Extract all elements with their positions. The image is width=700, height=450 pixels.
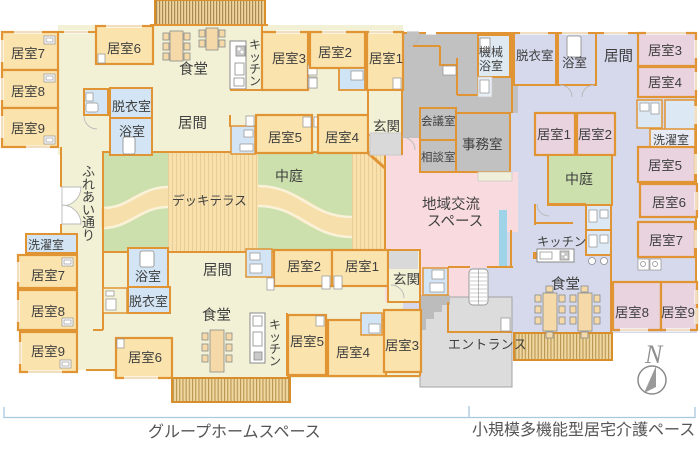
svg-text:地域交流: 地域交流 xyxy=(422,195,480,213)
svg-text:居室6: 居室6 xyxy=(128,349,162,365)
svg-text:小規模多機能型居宅介護ペース: 小規模多機能型居宅介護ペース xyxy=(472,421,695,439)
svg-text:玄関: 玄関 xyxy=(373,118,400,134)
svg-text:事務室: 事務室 xyxy=(462,136,503,152)
svg-text:エントランス: エントランス xyxy=(448,337,527,352)
svg-text:居室1: 居室1 xyxy=(345,258,379,274)
svg-text:居間: 居間 xyxy=(203,263,232,279)
svg-text:浴室: 浴室 xyxy=(135,269,161,284)
svg-text:浴室: 浴室 xyxy=(479,58,503,73)
svg-text:食堂: 食堂 xyxy=(202,307,231,324)
svg-text:中庭: 中庭 xyxy=(275,168,303,184)
svg-text:居室8: 居室8 xyxy=(31,303,65,319)
svg-text:脱衣室: 脱衣室 xyxy=(516,48,554,63)
svg-text:居室4: 居室4 xyxy=(648,74,682,90)
svg-text:食堂: 食堂 xyxy=(179,61,208,78)
svg-text:洗濯室: 洗濯室 xyxy=(28,237,64,252)
svg-text:居室6: 居室6 xyxy=(652,194,686,210)
svg-text:居室3: 居室3 xyxy=(385,337,419,353)
svg-text:浴室: 浴室 xyxy=(562,55,587,70)
svg-text:居間: 居間 xyxy=(178,116,207,132)
svg-text:り: り xyxy=(82,228,95,243)
svg-text:グループホームスペース: グループホームスペース xyxy=(148,423,321,441)
svg-text:居間: 居間 xyxy=(604,49,633,65)
svg-text:ン: ン xyxy=(249,74,261,88)
svg-text:居室7: 居室7 xyxy=(649,232,683,248)
svg-text:居室7: 居室7 xyxy=(11,45,45,61)
svg-text:居室6: 居室6 xyxy=(107,40,141,56)
svg-text:食堂: 食堂 xyxy=(551,276,580,293)
svg-text:居室9: 居室9 xyxy=(31,343,65,359)
svg-text:機械: 機械 xyxy=(479,44,503,59)
svg-text:中庭: 中庭 xyxy=(565,171,593,187)
svg-text:居室4: 居室4 xyxy=(325,129,359,145)
svg-text:居室7: 居室7 xyxy=(31,267,65,283)
svg-text:居室9: 居室9 xyxy=(11,120,45,136)
svg-text:居室2: 居室2 xyxy=(287,258,321,274)
svg-text:相談室: 相談室 xyxy=(421,150,456,164)
svg-text:ン: ン xyxy=(269,354,281,368)
svg-text:N: N xyxy=(644,340,664,369)
svg-text:キッチン: キッチン xyxy=(537,235,586,249)
svg-text:玄関: 玄関 xyxy=(393,271,420,287)
svg-text:居室1: 居室1 xyxy=(537,126,571,142)
svg-text:居室1: 居室1 xyxy=(369,50,403,66)
svg-text:居室8: 居室8 xyxy=(11,83,45,99)
svg-text:デッキテラス: デッキテラス xyxy=(172,193,247,208)
svg-text:居室9: 居室9 xyxy=(661,304,695,320)
svg-text:居室8: 居室8 xyxy=(615,304,649,320)
svg-text:脱衣室: 脱衣室 xyxy=(129,294,168,309)
svg-text:居室5: 居室5 xyxy=(268,129,302,145)
svg-text:居室5: 居室5 xyxy=(290,333,324,349)
svg-text:洗濯室: 洗濯室 xyxy=(653,132,689,147)
svg-text:スペース: スペース xyxy=(427,214,483,230)
svg-text:居室4: 居室4 xyxy=(336,344,370,360)
svg-text:脱衣室: 脱衣室 xyxy=(112,99,151,114)
svg-text:居室3: 居室3 xyxy=(648,42,682,58)
svg-text:会議室: 会議室 xyxy=(421,114,456,128)
svg-text:居室3: 居室3 xyxy=(272,50,306,66)
svg-text:居室5: 居室5 xyxy=(648,157,682,173)
svg-text:居室2: 居室2 xyxy=(318,44,352,60)
svg-text:居室2: 居室2 xyxy=(578,126,612,142)
